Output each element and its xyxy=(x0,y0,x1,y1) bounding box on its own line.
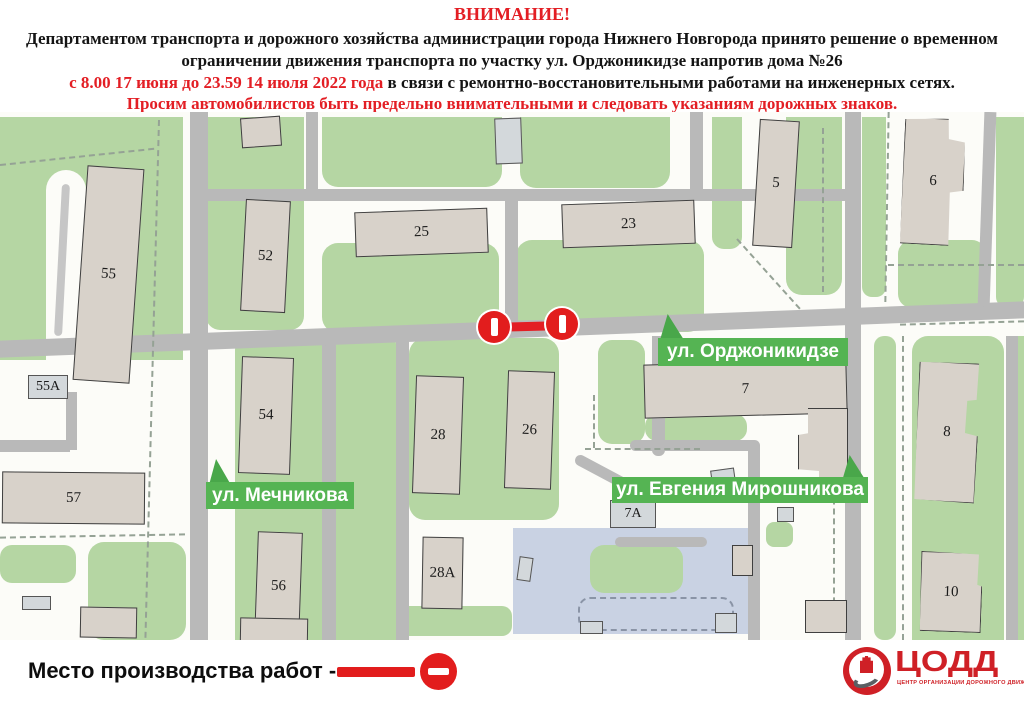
no-entry-bar xyxy=(428,668,449,675)
road xyxy=(66,392,77,450)
tsodd-logo: ЦОДД ЦЕНТР ОРГАНИЗАЦИИ ДОРОЖНОГО ДВИЖЕНИ… xyxy=(843,646,1019,698)
announcement-header: ВНИМАНИЕ! Департаментом транспорта и дор… xyxy=(0,4,1024,115)
road xyxy=(505,196,518,331)
road xyxy=(748,445,760,640)
park-area xyxy=(1018,336,1024,640)
boundary-dashed-line xyxy=(888,264,1024,266)
small-building xyxy=(80,607,138,639)
legend-label: Место производства работ - xyxy=(28,658,336,684)
building-55a: 55А xyxy=(28,375,68,399)
legend-closure-line xyxy=(337,667,415,677)
building-57: 57 xyxy=(2,471,145,524)
park-area xyxy=(520,117,670,188)
street-name: ул. Орджоникидзе xyxy=(667,341,839,363)
street-name: ул. Мечникова xyxy=(212,485,348,507)
park-area xyxy=(996,117,1024,307)
park-area xyxy=(712,117,742,249)
building-54: 54 xyxy=(238,356,294,475)
road xyxy=(615,537,707,547)
park-area xyxy=(0,545,76,583)
park-area xyxy=(322,117,502,187)
boundary-dashed-line xyxy=(593,395,595,448)
park-area xyxy=(598,340,645,444)
no-entry-bar xyxy=(559,315,566,333)
road xyxy=(690,112,703,194)
park-area xyxy=(364,606,512,636)
park-area xyxy=(322,243,499,333)
building-28: 28 xyxy=(412,375,464,495)
street-label-ordzhonikidze: ул. Орджоникидзе xyxy=(658,338,848,366)
road xyxy=(0,440,70,452)
road xyxy=(199,189,849,201)
street-name: ул. Евгения Мирошникова xyxy=(616,479,864,501)
closure-reason: в связи с ремонтно-восстановительными ра… xyxy=(383,73,955,92)
small-building xyxy=(715,613,737,633)
boundary-dashed-line xyxy=(822,128,824,292)
street-label-mechnikova: ул. Мечникова xyxy=(206,482,354,509)
no-entry-bar xyxy=(491,318,498,336)
road xyxy=(978,112,997,307)
boundary-dashed-line xyxy=(0,533,185,538)
small-building xyxy=(805,600,847,633)
road xyxy=(1006,336,1018,640)
closure-period: с 8.00 17 июня до 23.59 14 июля 2022 год… xyxy=(69,73,383,92)
small-building xyxy=(732,545,753,576)
building-26: 26 xyxy=(504,370,555,490)
building-23: 23 xyxy=(561,200,695,249)
building-52: 52 xyxy=(240,199,291,313)
boundary-dashed-line xyxy=(585,448,700,450)
logo-acronym: ЦОДД xyxy=(895,648,998,677)
logo-subtitle: ЦЕНТР ОРГАНИЗАЦИИ ДОРОЖНОГО ДВИЖЕНИЯ xyxy=(897,680,1019,686)
road xyxy=(396,336,409,640)
park-area xyxy=(874,336,896,640)
park-area xyxy=(898,240,986,308)
small-building xyxy=(580,621,603,634)
park-area xyxy=(862,117,886,297)
road-closure-notice-poster: ВНИМАНИЕ! Департаментом транспорта и дор… xyxy=(0,0,1024,707)
park-area xyxy=(766,522,793,547)
park-area xyxy=(590,545,683,593)
tsodd-logo-icon xyxy=(843,647,891,695)
period-paragraph: с 8.00 17 июня до 23.59 14 июля 2022 год… xyxy=(10,72,1014,94)
city-map: 55 55А 57 52 54 56 25 23 28 26 28А 5 6 7… xyxy=(0,112,1024,640)
building-10: 10 xyxy=(919,551,984,633)
building-28a: 28А xyxy=(421,537,463,610)
small-building xyxy=(240,116,282,149)
building-6: 6 xyxy=(899,116,968,246)
road xyxy=(845,112,861,640)
road xyxy=(306,112,318,195)
small-building xyxy=(240,617,308,640)
small-building xyxy=(777,507,794,522)
small-building xyxy=(494,118,523,165)
decision-paragraph: Департаментом транспорта и дорожного хоз… xyxy=(10,28,1014,72)
attention-title: ВНИМАНИЕ! xyxy=(0,4,1024,25)
street-label-miroshnikova: ул. Евгения Мирошникова xyxy=(612,477,868,503)
legend-no-entry-sign xyxy=(420,653,457,690)
building-5: 5 xyxy=(752,119,800,248)
building-7a: 7А xyxy=(610,500,656,528)
building-25: 25 xyxy=(354,208,488,258)
no-entry-sign xyxy=(546,308,578,340)
small-building xyxy=(22,596,51,610)
boundary-dashed-line xyxy=(902,336,904,640)
no-entry-sign xyxy=(478,311,510,343)
